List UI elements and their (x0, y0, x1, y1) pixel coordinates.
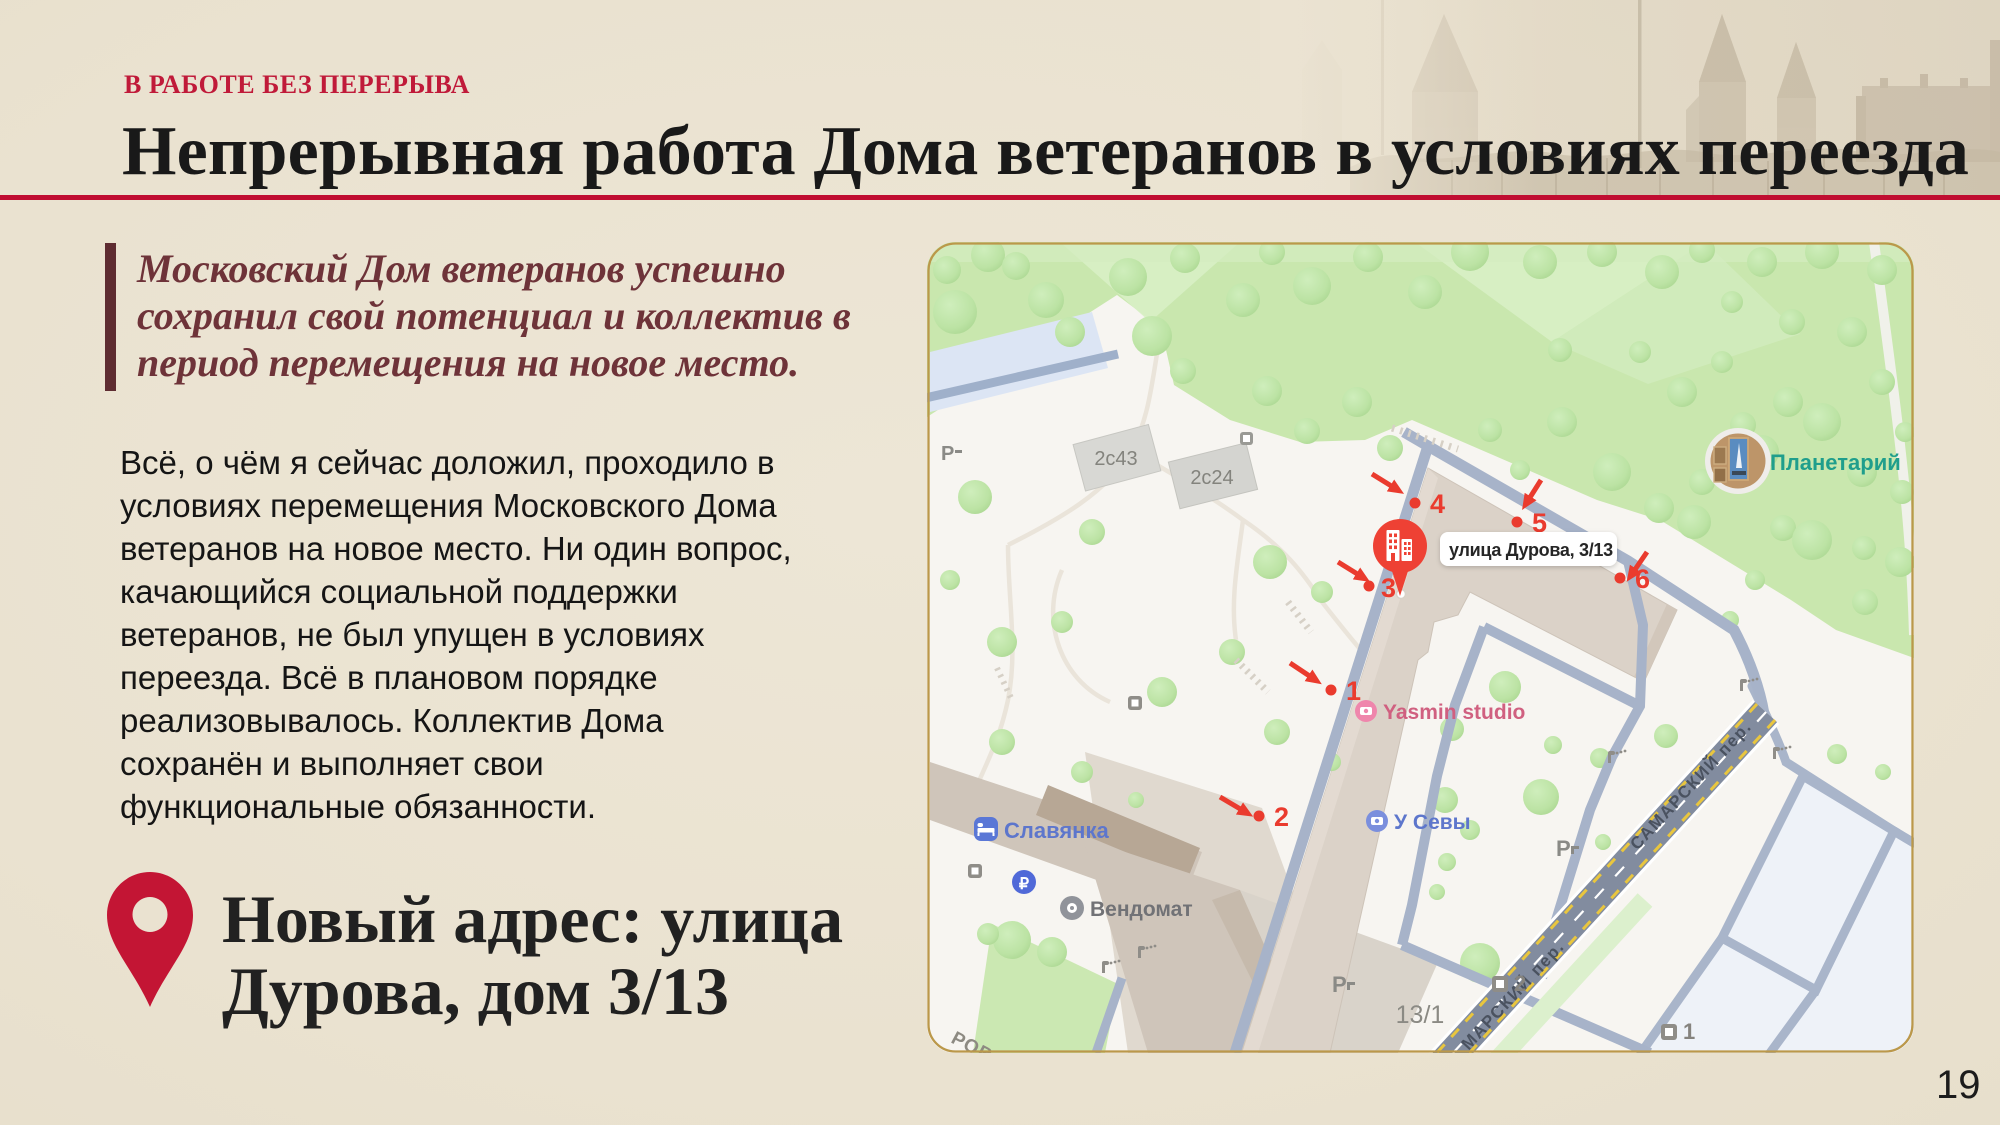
svg-text:2: 2 (1274, 802, 1289, 832)
svg-text:У Севы: У Севы (1394, 811, 1471, 834)
svg-text:2с24: 2с24 (1190, 467, 1233, 489)
svg-text:улица Дурова, 3/13: улица Дурова, 3/13 (1449, 540, 1613, 560)
svg-text:P: P (941, 443, 954, 465)
svg-text:P: P (1332, 972, 1347, 997)
svg-text:P: P (1556, 836, 1571, 861)
svg-text:3: 3 (1381, 573, 1396, 603)
svg-text:6: 6 (1635, 564, 1650, 594)
svg-text:2с43: 2с43 (1094, 448, 1137, 470)
svg-text:Yasmin studio: Yasmin studio (1383, 701, 1525, 724)
svg-text:1: 1 (1683, 1019, 1695, 1044)
svg-text:Вендомат: Вендомат (1090, 898, 1193, 921)
svg-text:Славянка: Славянка (1004, 818, 1109, 843)
svg-text:2: 2 (1514, 971, 1526, 996)
svg-text:Планетарий: Планетарий (1770, 450, 1901, 475)
svg-text:1: 1 (1346, 676, 1361, 706)
svg-text:13/1: 13/1 (1396, 1001, 1445, 1029)
svg-text:4: 4 (1430, 489, 1445, 519)
svg-text:₽: ₽ (1019, 876, 1029, 893)
